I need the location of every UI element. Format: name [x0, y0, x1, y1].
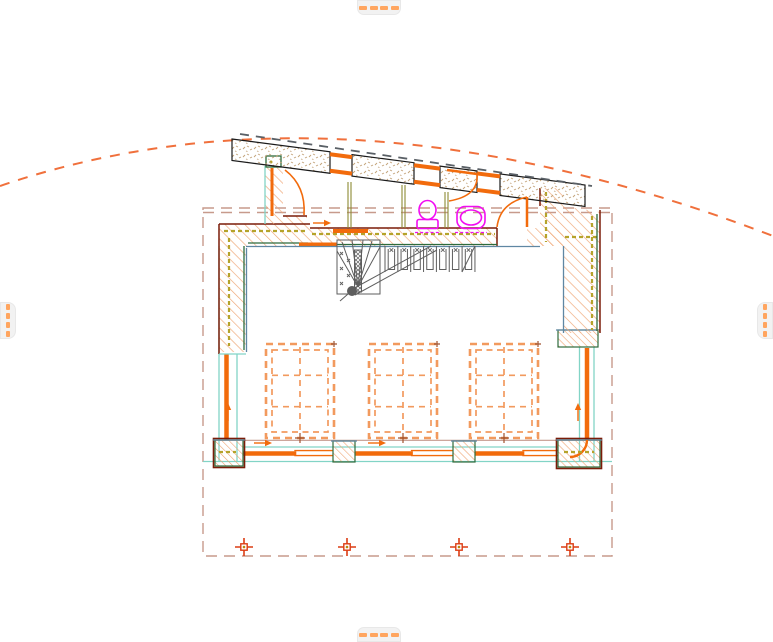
handle-dash-icon: [391, 633, 399, 637]
skylight[interactable]: [470, 341, 541, 443]
handle-dash-icon: [763, 331, 768, 337]
opening-arrows: [225, 220, 581, 446]
survey-marker[interactable]: [561, 538, 579, 556]
roof-window[interactable]: [477, 173, 500, 176]
wall-west[interactable]: [219, 216, 310, 354]
skylight[interactable]: [369, 341, 440, 443]
pier[interactable]: [331, 441, 357, 462]
handle-dash-icon: [6, 313, 11, 319]
roof-window[interactable]: [414, 182, 440, 185]
handle-dash-icon: [370, 6, 378, 10]
roof-window[interactable]: [330, 171, 352, 174]
handle-dash-icon: [380, 6, 388, 10]
survey-markers: [235, 538, 579, 556]
underlay-lines: [0, 138, 773, 556]
survey-marker[interactable]: [338, 538, 356, 556]
wall-opening-head: [333, 229, 368, 233]
handle-dash-icon: [359, 6, 367, 10]
survey-marker[interactable]: [450, 538, 468, 556]
skylights-layer: [266, 341, 541, 443]
south-glazing-bays[interactable]: [243, 451, 558, 456]
stair[interactable]: [337, 240, 475, 301]
direction-arrow: [575, 403, 581, 421]
roof-band-segment[interactable]: [440, 166, 477, 192]
roof-band[interactable]: [232, 139, 585, 206]
pier[interactable]: [451, 441, 477, 462]
handle-dash-icon: [370, 633, 378, 637]
handle-dash-icon: [6, 322, 11, 328]
floor-plan-svg: [0, 0, 773, 642]
handle-dash-icon: [763, 313, 768, 319]
roof-window[interactable]: [477, 190, 500, 193]
drawing-canvas[interactable]: [0, 0, 773, 642]
wall-east[interactable]: [527, 188, 600, 333]
stair-treads: [385, 246, 475, 272]
pan-handle-bottom[interactable]: [357, 627, 401, 642]
pan-handle-right[interactable]: [757, 302, 773, 339]
handle-dash-icon: [763, 322, 768, 328]
handle-dash-icon: [6, 331, 11, 337]
roof-eave-dashed-curve: [0, 138, 773, 236]
handle-dash-icon: [391, 6, 399, 10]
toilet-fixture[interactable]: [415, 201, 441, 233]
pan-handle-top[interactable]: [357, 0, 401, 15]
posts-layer: [348, 182, 448, 228]
handle-dash-icon: [6, 304, 11, 310]
roof-window[interactable]: [330, 154, 352, 157]
handle-dash-icon: [763, 304, 768, 310]
direction-arrow: [313, 220, 331, 226]
pan-handle-left[interactable]: [0, 302, 16, 339]
handle-dash-icon: [380, 633, 388, 637]
roof-window[interactable]: [414, 165, 440, 168]
skylight[interactable]: [266, 341, 337, 443]
handle-dash-icon: [359, 633, 367, 637]
survey-marker[interactable]: [235, 538, 253, 556]
